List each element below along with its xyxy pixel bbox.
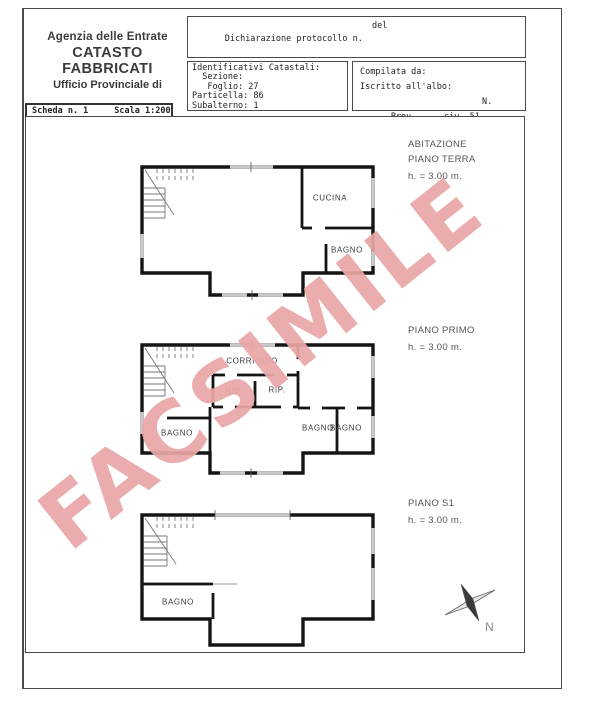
scale-value: Scala 1:200 (88, 106, 170, 116)
catasto-title: CATASTO FABBRICATI (30, 45, 185, 77)
agency-header: Agenzia delle Entrate CATASTO FABBRICATI… (30, 31, 185, 91)
room-bagno-primo-3: BAGNO (330, 424, 362, 433)
compass-icon (445, 584, 495, 621)
cadastral-document-page: Agenzia delle Entrate CATASTO FABBRICATI… (0, 0, 600, 714)
protocol-box: Dichiarazione protocollo n. del Planimet… (187, 16, 526, 58)
terra-window-ticks (251, 162, 252, 300)
provincial-office-label: Ufficio Provinciale di (30, 79, 185, 91)
number-label: N. (482, 95, 492, 110)
room-bagno-s1: BAGNO (162, 598, 194, 607)
subalterno-row: Subalterno: 1 (192, 102, 343, 111)
agency-name: Agenzia delle Entrate (30, 31, 185, 43)
s1-windows (215, 515, 373, 600)
sheet-number: Scheda n. 1 (27, 106, 88, 116)
del-label: del (372, 20, 387, 33)
protocol-label: Dichiarazione protocollo n. (225, 34, 363, 44)
registered-row: Iscritto all'albo: (360, 80, 518, 95)
terra-title: ABITAZIONE (408, 139, 467, 150)
compiler-box: Compilata da: Iscritto all'albo: Prov. N… (352, 61, 526, 111)
s1-outer-walls (142, 515, 373, 645)
room-cucina: CUCINA (313, 194, 347, 203)
primo-title: PIANO PRIMO (408, 325, 475, 336)
s1-height: h. = 3.00 m. (408, 515, 462, 526)
s1-stairs (144, 517, 193, 566)
north-label: N (485, 620, 494, 634)
terra-stairs (144, 169, 193, 218)
primo-height: h. = 3.00 m. (408, 342, 462, 353)
compiled-by-row: Compilata da: (360, 65, 518, 80)
cadastral-box: Identificativi Catastali: Sezione: Fogli… (187, 61, 348, 111)
s1-title: PIANO S1 (408, 498, 454, 509)
